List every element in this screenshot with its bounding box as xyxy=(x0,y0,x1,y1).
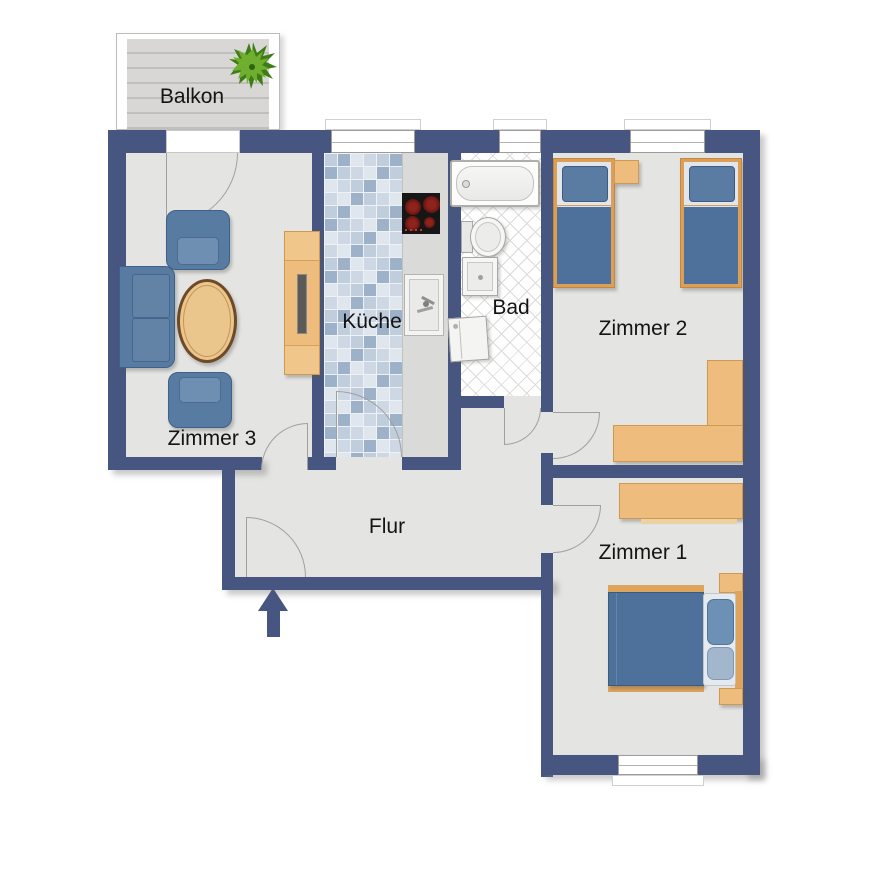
room-label-kueche: Küche xyxy=(342,310,402,334)
door-threshold xyxy=(541,412,553,453)
drain-icon xyxy=(478,275,483,280)
zimmer2-window xyxy=(630,130,705,153)
bad-door-leaf xyxy=(504,408,505,445)
bed-single xyxy=(680,158,742,288)
window-sill xyxy=(493,119,547,130)
wall-flur-zimmer2 xyxy=(541,453,553,505)
bathroom-window xyxy=(499,130,541,153)
door-threshold xyxy=(541,505,553,553)
stove-burner xyxy=(405,216,420,231)
room-label-bad: Bad xyxy=(492,296,529,320)
kitchen-sink xyxy=(404,274,444,336)
zimmer1-door-leaf xyxy=(553,505,601,506)
zimmer3-door-leaf xyxy=(307,423,308,470)
window-sill xyxy=(624,119,711,130)
bed-single xyxy=(553,158,615,288)
wall-zimmer3-bottom xyxy=(108,457,262,470)
door-threshold xyxy=(336,457,402,470)
window-sill xyxy=(612,775,704,786)
entrance-door-leaf xyxy=(246,517,247,577)
pillow xyxy=(562,166,608,202)
pillow xyxy=(707,647,734,680)
armchair xyxy=(168,372,232,428)
wall-bad-zimmer2 xyxy=(541,153,553,412)
room-label-zimmer2: Zimmer 2 xyxy=(599,317,688,341)
stove-burner xyxy=(423,196,440,213)
wall-kueche-bottom xyxy=(308,457,336,470)
floor-plan: Balkon Zimmer 3 Küche Bad Zimmer 2 Flur … xyxy=(0,0,872,869)
plant-icon xyxy=(229,41,277,93)
toilet xyxy=(461,217,506,255)
nightstand xyxy=(614,160,639,184)
entrance-arrow-icon xyxy=(258,588,288,611)
headboard xyxy=(735,591,743,688)
room-label-flur: Flur xyxy=(369,515,405,539)
balcony xyxy=(116,33,280,130)
pillow xyxy=(689,166,735,202)
wall-bad-bottom xyxy=(461,396,504,408)
drain-icon xyxy=(462,180,470,188)
room-label-balkon: Balkon xyxy=(160,85,224,109)
pillow xyxy=(707,599,734,645)
bed-double xyxy=(608,585,744,692)
entrance-arrow-icon xyxy=(267,610,280,637)
stove xyxy=(402,193,440,234)
armchair xyxy=(166,210,230,270)
desk xyxy=(613,425,743,462)
bathroom-sink xyxy=(462,257,498,296)
zimmer1-window xyxy=(618,755,698,775)
duvet xyxy=(608,592,704,686)
sideboard xyxy=(284,231,320,375)
kitchen-window xyxy=(331,130,415,153)
wall-zimmer1-left xyxy=(541,553,553,777)
duvet xyxy=(557,206,611,284)
coffee-table xyxy=(177,279,237,363)
room-label-zimmer3: Zimmer 3 xyxy=(168,427,257,451)
balcony-door-opening xyxy=(166,130,240,153)
zimmer2-door-leaf xyxy=(553,412,600,413)
stove-burner xyxy=(424,217,435,228)
bathtub xyxy=(450,160,540,207)
washing-machine xyxy=(448,316,490,363)
room-label-zimmer1: Zimmer 1 xyxy=(599,541,688,565)
wall-zimmer1-zimmer2 xyxy=(541,465,743,478)
nightstand xyxy=(719,688,743,705)
wall-flur-left xyxy=(222,470,235,590)
duvet xyxy=(684,206,738,284)
window-sill xyxy=(325,119,421,130)
sofa xyxy=(119,266,175,368)
kueche-door-leaf xyxy=(336,391,337,457)
wall-right xyxy=(743,130,760,775)
desk xyxy=(707,360,743,430)
door-threshold xyxy=(504,396,541,408)
stove-burner xyxy=(405,199,421,215)
desk xyxy=(619,483,743,519)
